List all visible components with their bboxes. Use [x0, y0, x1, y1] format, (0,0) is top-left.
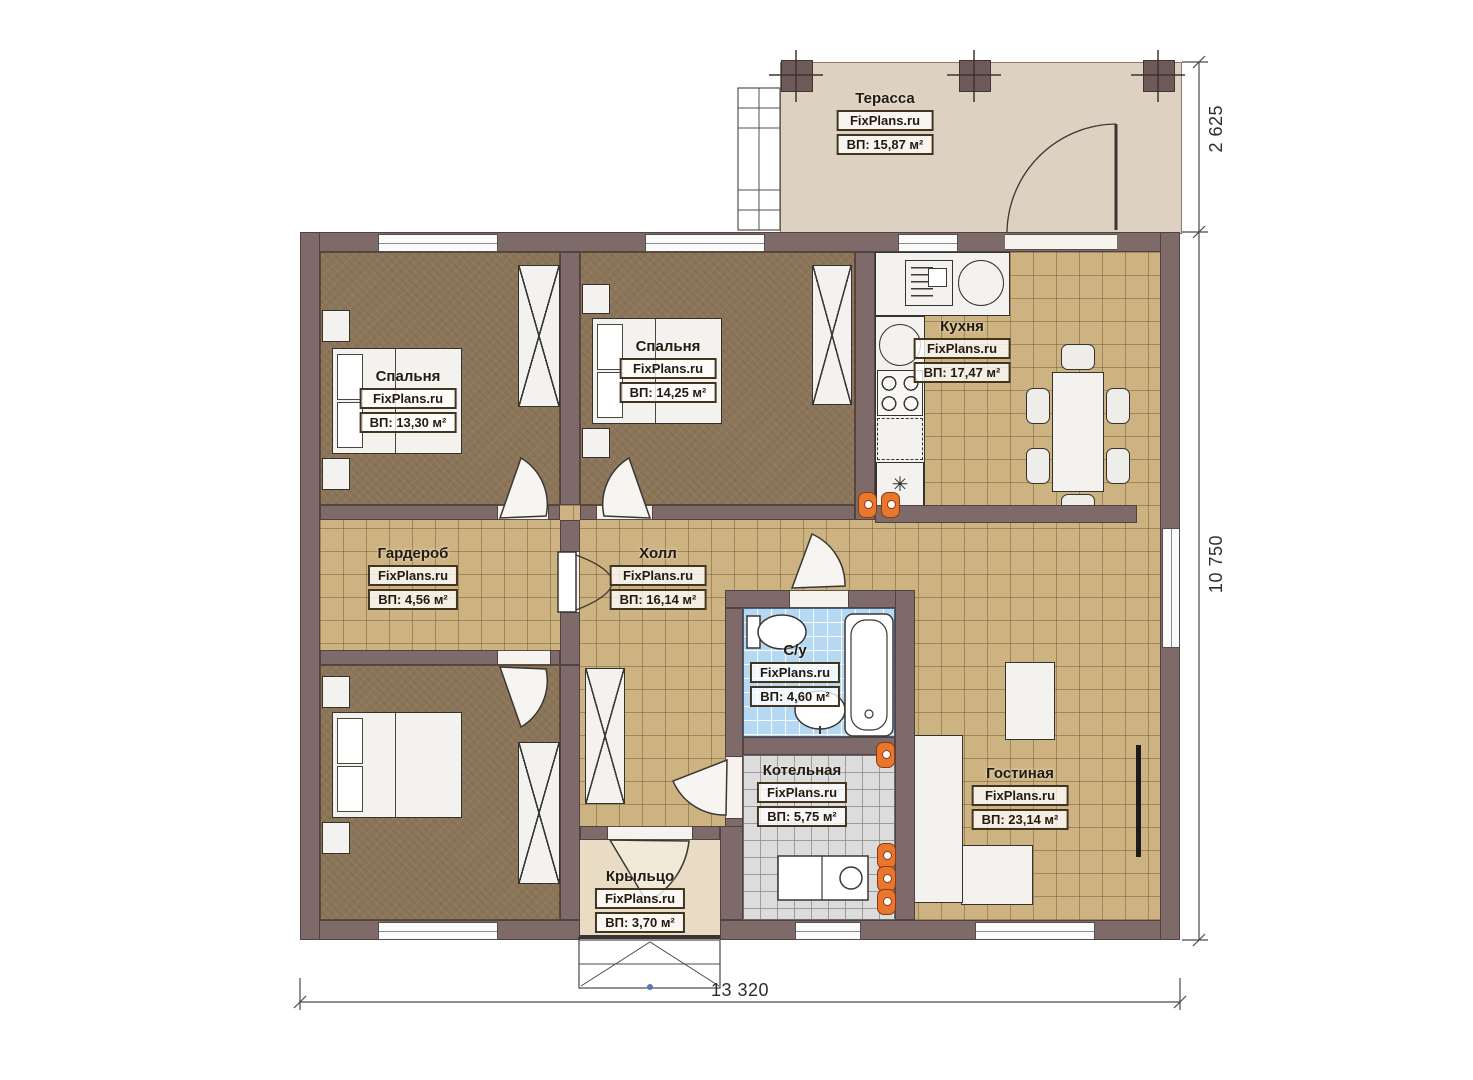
- window-dining: [1162, 528, 1180, 648]
- nightstand: [582, 284, 610, 314]
- watermark: FixPlans.ru: [757, 782, 847, 803]
- watermark: FixPlans.ru: [610, 565, 707, 586]
- room-name: Кухня: [914, 318, 1011, 335]
- room-name: Терасса: [837, 90, 934, 107]
- room-area: ВП: 4,60 м²: [750, 686, 840, 707]
- watermark: FixPlans.ru: [360, 388, 457, 409]
- bed: [332, 712, 462, 818]
- window-boiler: [795, 922, 861, 940]
- wall-bedroom3-north: [550, 650, 560, 665]
- watermark: FixPlans.ru: [750, 662, 840, 683]
- wall-bedroom2-south: [652, 505, 855, 520]
- terrace-column: [781, 60, 813, 92]
- console-table: [1005, 662, 1055, 740]
- dining-chair: [1026, 448, 1050, 484]
- wardrobe-cabinet: [518, 742, 560, 884]
- terrace-column: [959, 60, 991, 92]
- floor-plan: ✳: [0, 0, 1473, 1080]
- room-label-living: Гостиная FixPlans.ru ВП: 23,14 м²: [972, 765, 1069, 830]
- room-name: Спальня: [360, 368, 457, 385]
- kitchen-appliance: [905, 260, 953, 306]
- room-name: Котельная: [757, 762, 847, 779]
- wall-wardrobe-east: [560, 520, 580, 552]
- sofa-horizontal: [961, 845, 1033, 905]
- door-opening-bedroom-3: [498, 650, 550, 665]
- wall-bedroom1-south: [548, 505, 560, 520]
- terrace-column: [1143, 60, 1175, 92]
- dimension-terrace-height: 2 625: [1206, 105, 1227, 153]
- room-name: С/у: [750, 642, 840, 659]
- nightstand: [322, 310, 350, 342]
- wall-bath-boiler-divider: [743, 737, 895, 755]
- wall-bath-west: [725, 608, 743, 757]
- porch-steps: [579, 940, 720, 988]
- watermark: FixPlans.ru: [620, 358, 717, 379]
- watermark: FixPlans.ru: [972, 785, 1069, 806]
- room-name: Гардероб: [368, 545, 458, 562]
- watermark: FixPlans.ru: [837, 110, 934, 131]
- dimension-house-width: 13 320: [711, 980, 769, 1001]
- room-label-bedroom-2: Спальня FixPlans.ru ВП: 14,25 м²: [620, 338, 717, 403]
- wardrobe-cabinet: [812, 265, 852, 405]
- dining-chair: [1106, 448, 1130, 484]
- room-area: ВП: 15,87 м²: [837, 134, 934, 155]
- door-opening-wardrobe: [560, 552, 580, 612]
- room-name: Холл: [610, 545, 707, 562]
- wall-dining-south: [875, 505, 1137, 523]
- room-area: ВП: 16,14 м²: [610, 589, 707, 610]
- room-label-kitchen: Кухня FixPlans.ru ВП: 17,47 м²: [914, 318, 1011, 383]
- room-area: ВП: 14,25 м²: [620, 382, 717, 403]
- nightstand: [322, 676, 350, 708]
- wall-bedrooms-divider: [560, 252, 580, 505]
- wall-entrance: [692, 826, 720, 840]
- nightstand: [582, 428, 610, 458]
- dishwasher: [877, 418, 923, 460]
- wall-bottom: [720, 920, 1180, 940]
- room-name: Спальня: [620, 338, 717, 355]
- room-label-wardrobe: Гардероб FixPlans.ru ВП: 4,56 м²: [368, 545, 458, 610]
- wall-bedroom3-east: [560, 665, 580, 920]
- wall-bath-north: [725, 590, 790, 608]
- room-label-boiler: Котельная FixPlans.ru ВП: 5,75 м²: [757, 762, 847, 827]
- nightstand: [322, 822, 350, 854]
- radiator-icon: [881, 492, 900, 518]
- steps-marker: [647, 984, 653, 990]
- room-label-bedroom-1: Спальня FixPlans.ru ВП: 13,30 м²: [360, 368, 457, 433]
- dining-chair: [1026, 388, 1050, 424]
- wall-bedroom3-north: [320, 650, 498, 665]
- window-bedroom-1: [378, 234, 498, 252]
- door-opening-entrance: [608, 826, 692, 840]
- room-name: Гостиная: [972, 765, 1069, 782]
- watermark: FixPlans.ru: [595, 888, 685, 909]
- wardrobe-cabinet: [518, 265, 560, 407]
- wall-kitchen-west: [855, 252, 875, 520]
- wall-bedroom1-south: [320, 505, 498, 520]
- hall-wardrobe-cabinet: [585, 668, 625, 804]
- wall-wardrobe-east: [560, 612, 580, 665]
- radiator-icon: [877, 889, 896, 915]
- dining-chair: [1106, 388, 1130, 424]
- room-area: ВП: 5,75 м²: [757, 806, 847, 827]
- kitchen-sink: [958, 260, 1004, 306]
- room-area: ВП: 17,47 м²: [914, 362, 1011, 383]
- room-area: ВП: 4,56 м²: [368, 589, 458, 610]
- room-area: ВП: 13,30 м²: [360, 412, 457, 433]
- room-name: Крыльцо: [595, 868, 685, 885]
- window-living: [975, 922, 1095, 940]
- room-label-hall: Холл FixPlans.ru ВП: 16,14 м²: [610, 545, 707, 610]
- window-bedroom-2: [645, 234, 765, 252]
- watermark: FixPlans.ru: [368, 565, 458, 586]
- radiator-icon: [858, 492, 877, 518]
- terrace-stairs: [738, 88, 780, 230]
- dining-chair: [1061, 344, 1095, 370]
- dimension-house-height: 10 750: [1206, 535, 1227, 593]
- room-area: ВП: 23,14 м²: [972, 809, 1069, 830]
- door-opening-boiler: [725, 757, 743, 818]
- window-kitchen: [898, 234, 958, 252]
- dining-table: [1052, 372, 1104, 492]
- room-label-terrace: Терасса FixPlans.ru ВП: 15,87 м²: [837, 90, 934, 155]
- door-opening-bathroom: [790, 590, 848, 608]
- wall-porch-east: [720, 826, 743, 920]
- door-opening-bedroom-1: [498, 505, 548, 520]
- room-label-bathroom: С/у FixPlans.ru ВП: 4,60 м²: [750, 642, 840, 707]
- wall-left: [300, 232, 320, 940]
- nightstand: [322, 458, 350, 490]
- wall-bedroom2-south: [580, 505, 597, 520]
- sofa-vertical: [908, 735, 963, 903]
- window-bedroom-3: [378, 922, 498, 940]
- room-area: ВП: 3,70 м²: [595, 912, 685, 933]
- appliance-panel: [928, 268, 947, 287]
- door-opening-terrace: [1005, 234, 1117, 250]
- watermark: FixPlans.ru: [914, 338, 1011, 359]
- room-label-porch: Крыльцо FixPlans.ru ВП: 3,70 м²: [595, 868, 685, 933]
- door-opening-bedroom-2: [597, 505, 652, 520]
- wall-bath-east: [895, 590, 915, 920]
- radiator-icon: [876, 742, 895, 768]
- wall-entrance: [580, 826, 608, 840]
